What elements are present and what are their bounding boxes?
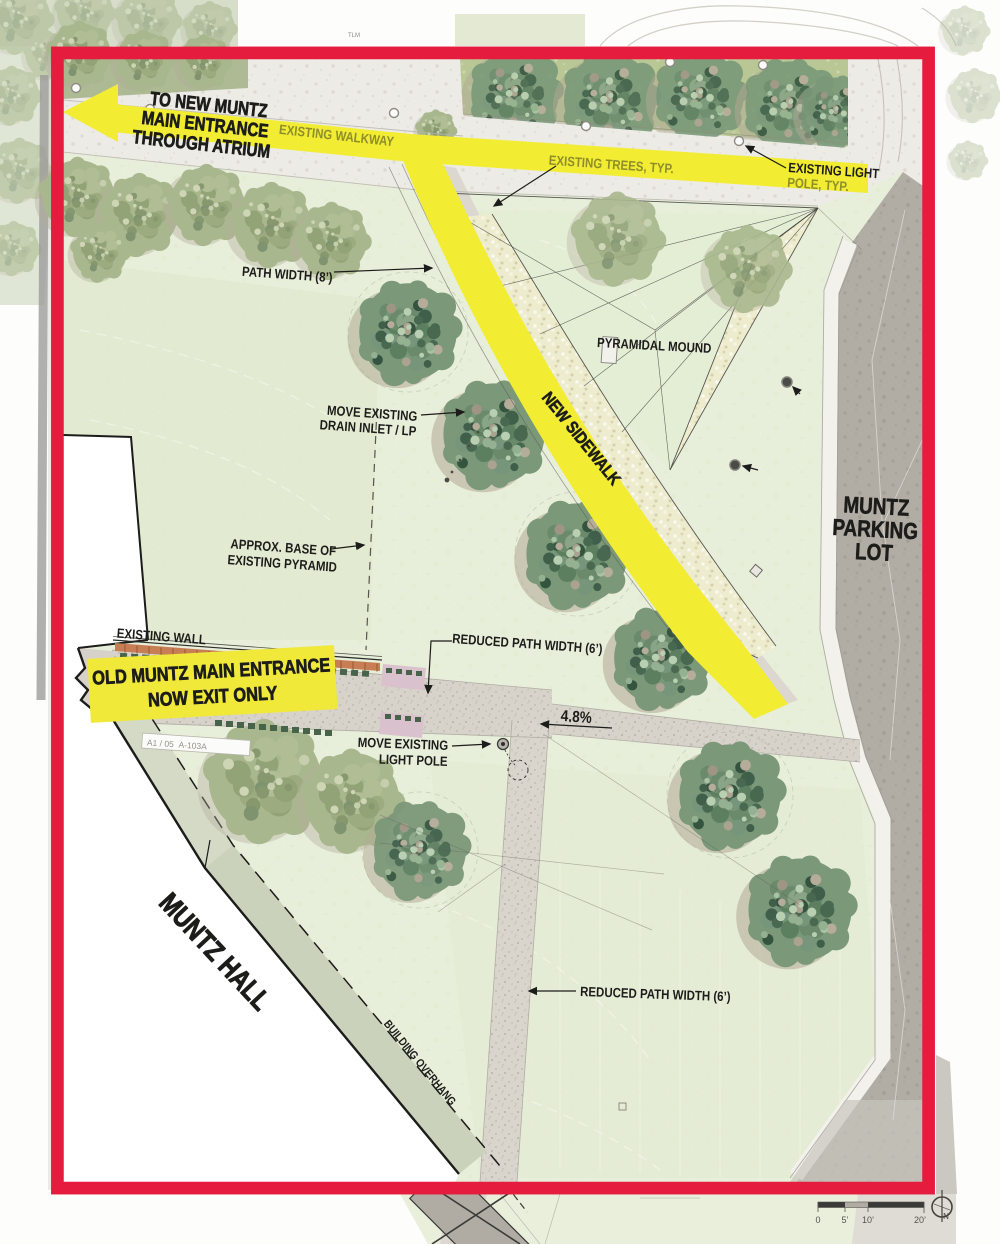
svg-text:LIGHT POLE: LIGHT POLE xyxy=(379,752,448,769)
svg-text:4.8%: 4.8% xyxy=(560,708,592,727)
svg-text:5’: 5’ xyxy=(841,1215,848,1225)
svg-text:N: N xyxy=(943,1212,949,1221)
svg-text:20’: 20’ xyxy=(914,1215,926,1225)
svg-text:0: 0 xyxy=(815,1215,820,1225)
svg-text:TLM: TLM xyxy=(348,33,360,39)
svg-text:LOT: LOT xyxy=(854,539,893,566)
svg-text:MOVE EXISTING: MOVE EXISTING xyxy=(357,735,448,753)
svg-text:10’: 10’ xyxy=(862,1215,874,1225)
